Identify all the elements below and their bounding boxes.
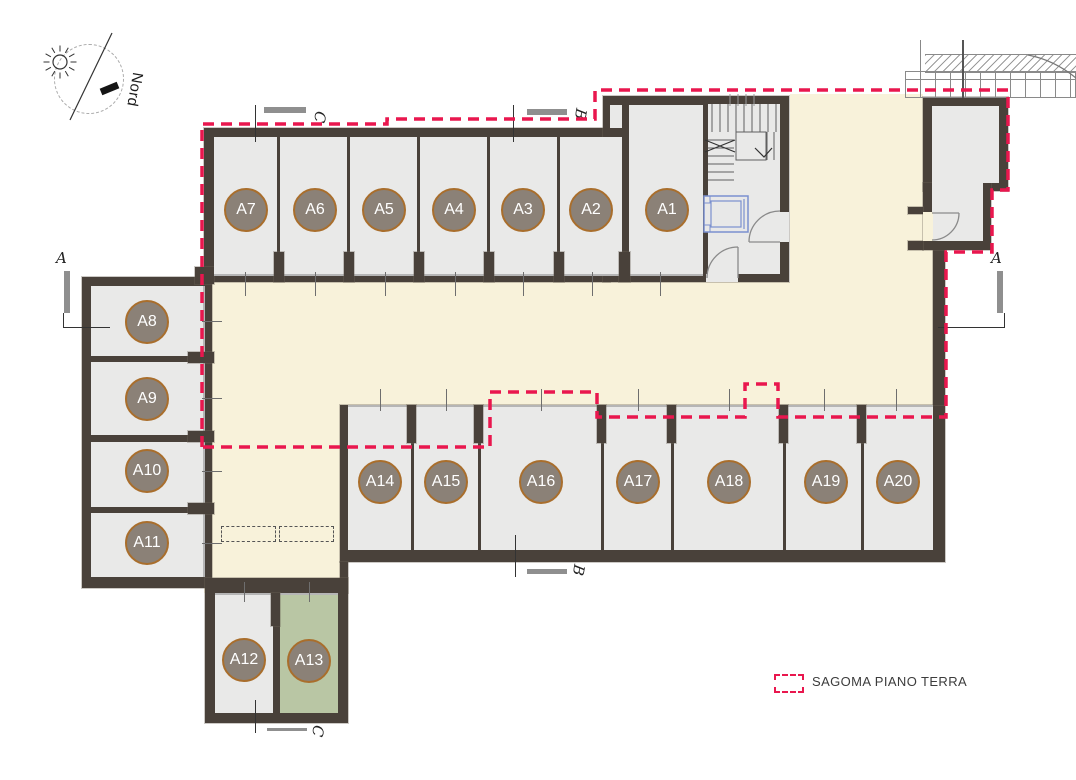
post bbox=[667, 405, 676, 443]
unit-badge-a11: A11 bbox=[125, 521, 169, 565]
ramp-grid-band bbox=[905, 71, 1076, 98]
wall-topright-room-bottom-ext bbox=[908, 241, 923, 250]
tick bbox=[309, 582, 310, 602]
section-bar-c-bottom bbox=[267, 728, 307, 731]
floor-plan-canvas: C B A A B C Nord bbox=[0, 0, 1076, 780]
corridor-main bbox=[204, 282, 933, 405]
unit-badge-a3: A3 bbox=[501, 188, 545, 232]
section-line-c-bottom bbox=[255, 700, 256, 733]
post bbox=[779, 405, 788, 443]
tick bbox=[729, 389, 730, 411]
room-a1-notch bbox=[610, 105, 622, 128]
unit-badge-a1: A1 bbox=[645, 188, 689, 232]
section-line-a-right-h bbox=[938, 327, 1005, 328]
tick bbox=[541, 389, 542, 411]
post bbox=[344, 252, 354, 282]
section-letter-a-left: A bbox=[56, 249, 67, 267]
tick bbox=[592, 272, 593, 296]
post bbox=[407, 405, 416, 443]
unit-badge-a18: A18 bbox=[707, 460, 751, 504]
ramp-line bbox=[920, 40, 921, 72]
north-dashed-circle bbox=[54, 44, 124, 114]
section-line-b-bottom bbox=[515, 535, 516, 577]
post bbox=[554, 252, 564, 282]
tick bbox=[202, 398, 222, 399]
section-line-c-top bbox=[255, 105, 256, 142]
unit-badge-a5: A5 bbox=[362, 188, 406, 232]
unit-badge-a19: A19 bbox=[804, 460, 848, 504]
unit-badge-a17: A17 bbox=[616, 460, 660, 504]
unit-badge-a15: A15 bbox=[424, 460, 468, 504]
tick bbox=[660, 272, 661, 296]
tick bbox=[523, 272, 524, 296]
section-line-a-left-v bbox=[63, 313, 64, 328]
section-letter-a-right: A bbox=[991, 249, 1002, 267]
room-topright-lower bbox=[932, 183, 983, 241]
tick bbox=[315, 272, 316, 296]
section-line-a-right-v bbox=[1004, 313, 1005, 328]
unit-badge-a12: A12 bbox=[222, 638, 266, 682]
section-bar-c-top bbox=[264, 107, 306, 113]
unit-badge-a20: A20 bbox=[876, 460, 920, 504]
post bbox=[474, 405, 483, 443]
room-topright-upper bbox=[932, 106, 999, 183]
unit-badge-a6: A6 bbox=[293, 188, 337, 232]
unit-badge-a14: A14 bbox=[358, 460, 402, 504]
post bbox=[271, 593, 280, 626]
tick bbox=[896, 389, 897, 411]
tick bbox=[202, 471, 222, 472]
section-line-b-top bbox=[513, 105, 514, 142]
door-gap-stair-south bbox=[706, 274, 738, 282]
section-letter-b-bottom: B bbox=[569, 563, 589, 577]
legend-label: SAGOMA PIANO TERRA bbox=[812, 673, 967, 690]
tick bbox=[638, 389, 639, 411]
section-line-a-left-h bbox=[63, 327, 110, 328]
section-bar-b-top bbox=[527, 109, 567, 115]
tick bbox=[244, 582, 245, 602]
unit-badge-a10: A10 bbox=[125, 449, 169, 493]
door-gap-topright-room bbox=[923, 212, 933, 241]
unit-badge-a9: A9 bbox=[125, 377, 169, 421]
section-bar-a-left bbox=[64, 271, 70, 313]
stairwell-interior bbox=[708, 104, 780, 274]
corridor-left-branch bbox=[204, 405, 340, 593]
tick bbox=[202, 321, 222, 322]
unit-badge-a16: A16 bbox=[519, 460, 563, 504]
door-gap-stair-east bbox=[780, 212, 789, 242]
tick bbox=[245, 272, 246, 296]
post bbox=[188, 352, 214, 363]
unit-badge-a13: A13 bbox=[287, 639, 331, 683]
tick bbox=[380, 389, 381, 411]
corridor-ramp-branch bbox=[790, 94, 923, 282]
dashed-placeholder-box bbox=[221, 526, 276, 542]
post bbox=[274, 252, 284, 282]
dashed-placeholder-box bbox=[279, 526, 334, 542]
tick bbox=[455, 272, 456, 296]
section-bar-b-bottom bbox=[527, 569, 567, 574]
tick bbox=[385, 272, 386, 296]
post bbox=[188, 503, 214, 514]
section-letter-c-top: C bbox=[310, 110, 330, 124]
tick bbox=[446, 389, 447, 411]
post bbox=[857, 405, 866, 443]
post bbox=[619, 252, 630, 282]
unit-badge-a8: A8 bbox=[125, 300, 169, 344]
section-letter-c-bottom: C bbox=[308, 724, 328, 738]
post bbox=[188, 431, 214, 442]
section-bar-a-right bbox=[997, 271, 1003, 313]
unit-badge-a4: A4 bbox=[432, 188, 476, 232]
unit-badge-a7: A7 bbox=[224, 188, 268, 232]
legend-dashed-swatch bbox=[774, 674, 804, 693]
tick bbox=[824, 389, 825, 411]
post bbox=[484, 252, 494, 282]
post bbox=[597, 405, 606, 443]
unit-badge-a2: A2 bbox=[569, 188, 613, 232]
post bbox=[414, 252, 424, 282]
corridor-ramp-branch-lower bbox=[923, 250, 933, 282]
section-letter-b-top: B bbox=[571, 107, 591, 121]
ramp-line-heavy bbox=[962, 40, 964, 98]
wall-stub-topblock-left bbox=[195, 267, 214, 284]
wall-topright-room-stub bbox=[908, 207, 923, 214]
north-label: Nord bbox=[123, 71, 146, 108]
tick bbox=[202, 543, 222, 544]
